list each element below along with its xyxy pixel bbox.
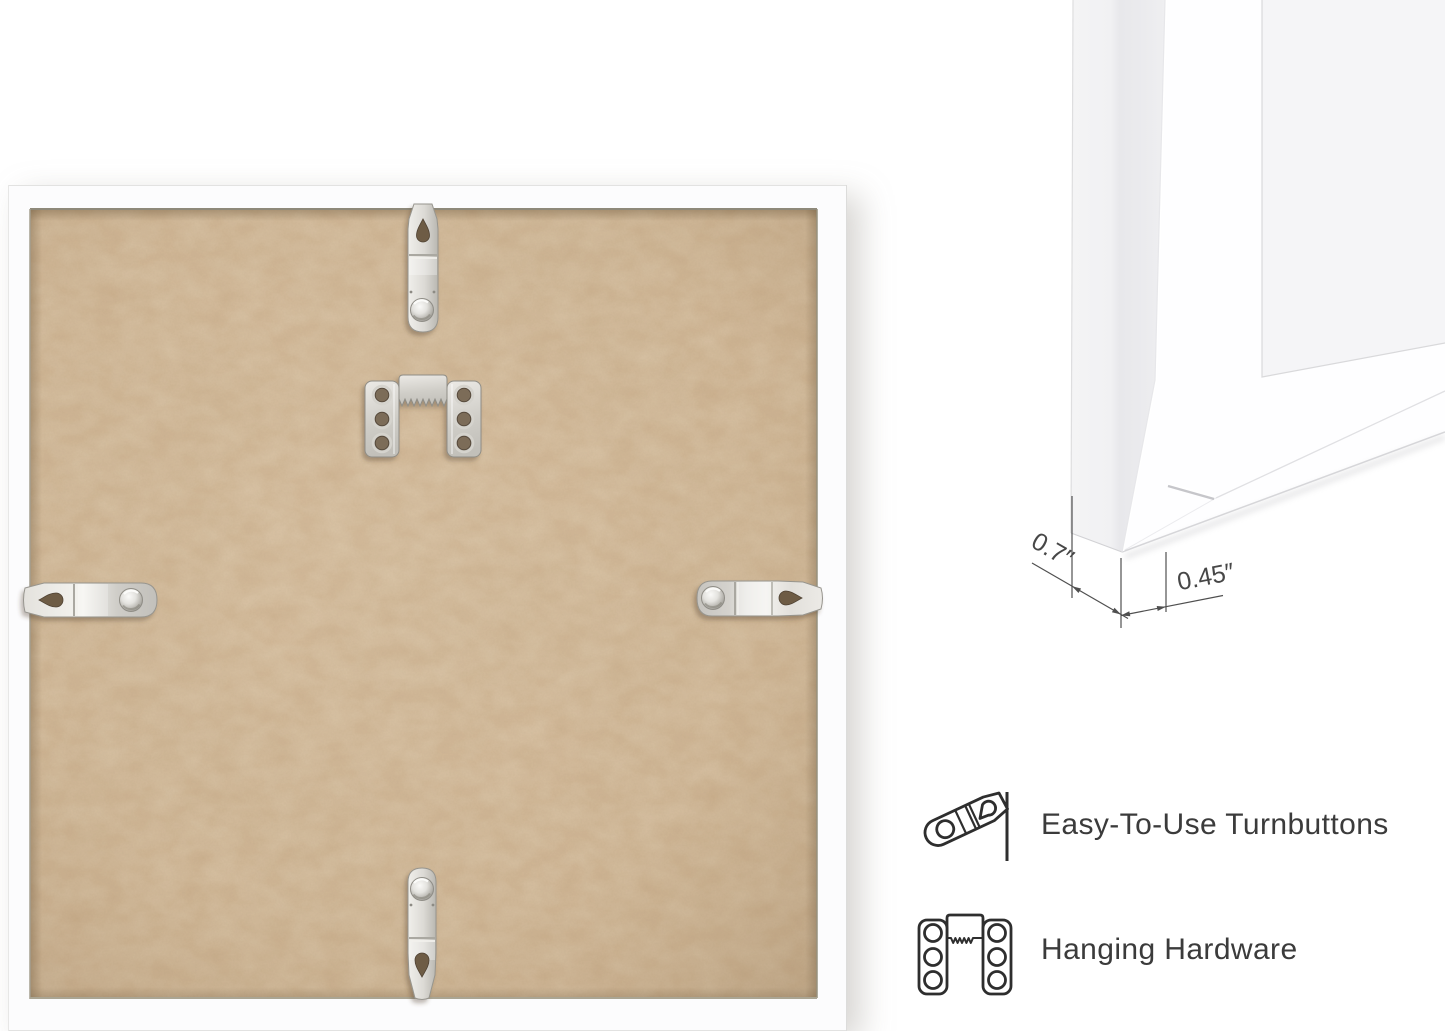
hanging-hardware-icon: [900, 905, 1030, 1015]
turnbutton-icon: [900, 780, 1030, 880]
mat-opening: [1262, 0, 1445, 377]
face-width-dimension-label: 0.45″: [1175, 558, 1237, 596]
feature-label-turnbuttons: Easy-To-Use Turnbuttons: [1041, 806, 1389, 844]
left-turnbutton: [24, 583, 158, 617]
feature-label-hanging-hardware: Hanging Hardware: [1041, 931, 1298, 969]
bottom-turnbutton: [408, 868, 436, 1000]
depth-dimension-label: 0.7″: [1027, 527, 1079, 573]
frame-back-photo: [8, 185, 847, 1031]
frame-corner-detail: 0.7″ 0.45″: [1010, 0, 1445, 660]
right-turnbutton: [697, 581, 823, 616]
top-turnbutton: [408, 204, 438, 332]
product-infographic: 0.7″ 0.45″ Easy-To-Use Turnbuttons: [0, 0, 1445, 1031]
